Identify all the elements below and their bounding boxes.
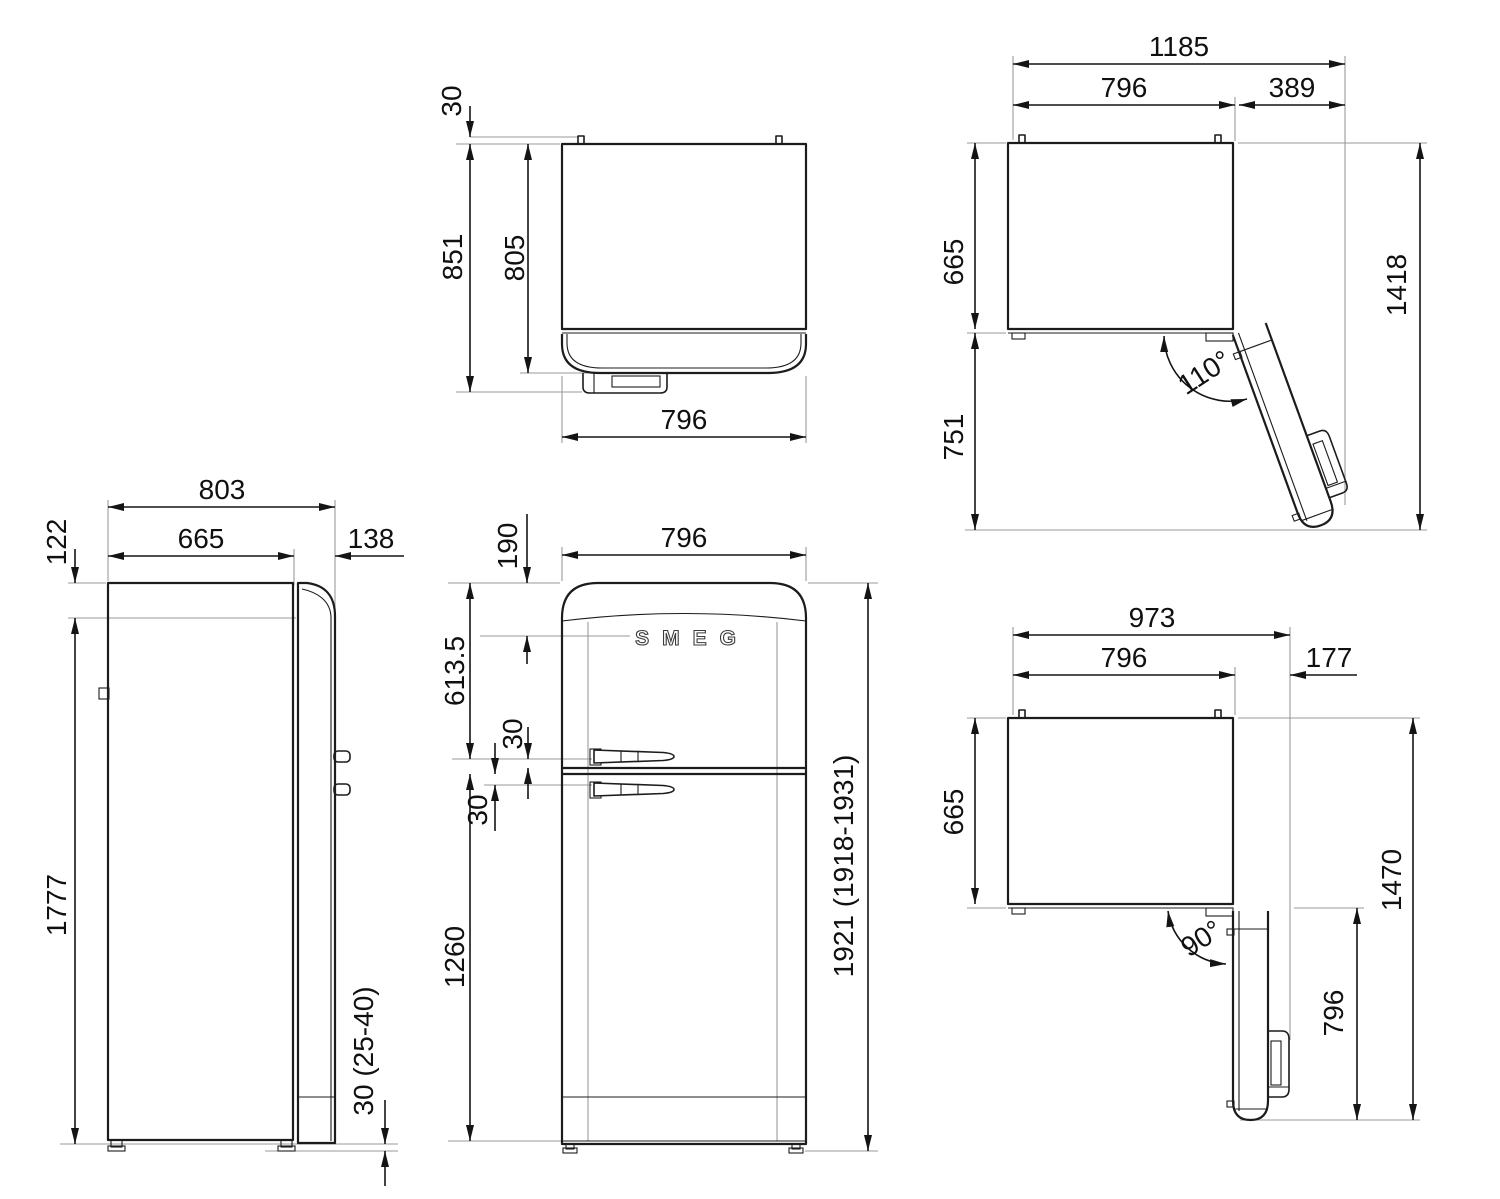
dim-open110-cabinet-depth: 665 [938,239,969,286]
dim-front-upper-section: 613.5 [439,636,470,706]
dim-open90-overall-width: 973 [1129,602,1176,633]
dim-top-depth-with-handle: 851 [437,234,468,281]
dim-open90-door-overhang: 177 [1306,642,1353,673]
side-view: 803 665 138 122 1777 30 (25-40) [41,474,404,1186]
side-cabinet-body [108,583,293,1140]
front-cabinet [562,583,806,1144]
open110-cabinet [1008,143,1233,329]
dim-top-width: 796 [661,404,708,435]
dim-open110-door-overhang: 389 [1269,72,1316,103]
top-door [562,334,806,373]
dim-open90-cabinet-depth: 665 [938,789,969,836]
side-feet [108,1140,295,1151]
side-upper-handle [334,751,350,762]
dim-open110-overall-width: 1185 [1149,31,1209,62]
side-door [298,583,335,1143]
dim-front-logo-offset: 190 [492,523,523,570]
dim-front-lower-section: 1260 [439,926,470,988]
dim-open90-angle: 90° [1175,914,1227,963]
dim-open110-angle: 110° [1172,344,1236,400]
top-cabinet [562,144,806,329]
top-door-handle [583,373,667,393]
refrigerator-dimension-drawing: 803 665 138 122 1777 30 (25-40) [0,0,1500,1199]
dim-open110-door-projection: 751 [938,414,969,461]
dim-open90-cabinet-width: 796 [1101,642,1148,673]
dim-side-body-depth: 665 [178,523,225,554]
top-view: 30 851 805 796 [436,85,806,443]
brand-logo: SMEG [635,627,749,650]
open90-door [1227,911,1289,1120]
top-hinge-pins [578,136,782,144]
dim-top-hinge-protrusion: 30 [436,85,467,116]
dim-front-upper-handle-offset: 30 [497,718,528,749]
dim-open90-door-length: 796 [1318,990,1349,1037]
dim-open90-overall-depth: 1470 [1376,849,1407,911]
side-lower-handle [334,784,350,795]
dim-side-overall-depth: 803 [199,474,246,505]
open110-door [1227,316,1357,534]
dim-side-door-depth: 138 [348,523,395,554]
dim-open110-overall-depth: 1418 [1381,254,1412,316]
front-lower-handle [590,782,674,798]
plan-view-open-90: 90° 973 796 177 665 796 1470 [938,602,1420,1120]
dim-open110-cabinet-width: 796 [1101,72,1148,103]
dim-front-lower-handle-offset: 30 [462,794,493,825]
front-upper-handle [590,749,674,765]
dim-front-overall-height: 1921 (1918-1931) [828,755,859,978]
dimension-drawing-canvas: 803 665 138 122 1777 30 (25-40) [0,0,1500,1199]
front-view: SMEG 796 190 613.5 30 [439,514,878,1153]
dim-side-top-inset: 122 [41,519,72,566]
front-feet [563,1144,803,1153]
dim-side-base-clearance: 30 (25-40) [348,986,379,1115]
dim-top-depth-no-handle: 805 [499,235,530,282]
dim-front-width: 796 [661,522,708,553]
open90-cabinet [1008,718,1233,904]
plan-view-open-110: 110° 1185 796 389 665 751 1418 [938,31,1427,533]
dim-side-door-height: 1777 [41,874,72,936]
